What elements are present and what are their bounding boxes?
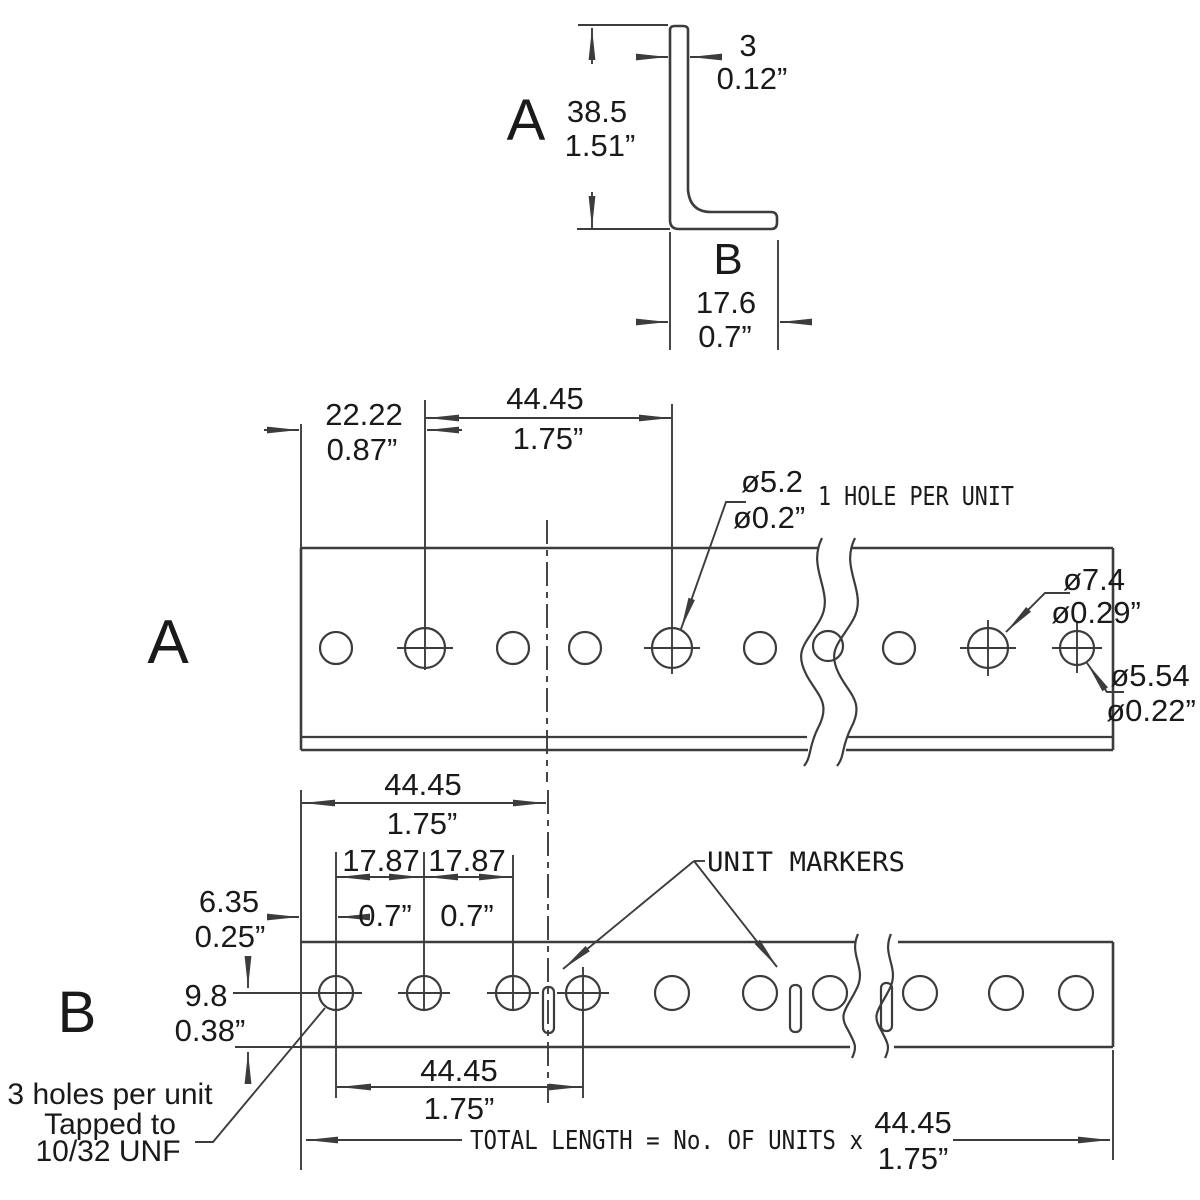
dim-spacing1-mm: 17.87 bbox=[342, 843, 420, 878]
hole-plain bbox=[655, 976, 689, 1010]
dim-big-hole-in: ø0.29” bbox=[1051, 595, 1141, 630]
view-b-label: B bbox=[58, 980, 97, 1045]
dim-unit-hole-in: ø0.2” bbox=[733, 500, 805, 535]
dim-pitch-b-top-mm: 44.45 bbox=[384, 767, 462, 802]
dim-total-in: 1.75” bbox=[878, 1141, 949, 1176]
side-b-view: B 44.45 1.75” 17.87 17.87 0.7” 0.7” 6.35… bbox=[7, 767, 1113, 1176]
note-tapped-line1: 3 holes per unit bbox=[7, 1078, 213, 1111]
hole-plain bbox=[1059, 976, 1093, 1010]
leader-unit-marker1 bbox=[563, 861, 694, 969]
dim-unit-hole-mm: ø5.2 bbox=[741, 464, 803, 499]
dim-holeheight-mm: 9.8 bbox=[184, 978, 227, 1013]
dim-edge-mm: 6.35 bbox=[199, 884, 259, 919]
hole-plain bbox=[813, 976, 847, 1010]
dim-total-mm: 44.45 bbox=[874, 1105, 952, 1140]
hole-plain bbox=[320, 632, 352, 664]
dim-offset-a-mm: 22.22 bbox=[325, 397, 403, 432]
note-tapped-line3: 10/32 UNF bbox=[35, 1135, 180, 1168]
angle-profile-outline bbox=[670, 26, 777, 229]
dim-holeheight-in: 0.38” bbox=[175, 1013, 246, 1048]
hole-plain bbox=[903, 976, 937, 1010]
cross-section-view: A 38.5 1.51” 3 0.12” B 17.6 0.7” bbox=[507, 25, 812, 354]
dim-small-hole-in: ø0.22” bbox=[1106, 693, 1196, 728]
dim-small-hole-mm: ø5.54 bbox=[1110, 658, 1189, 693]
section-label-a: A bbox=[507, 88, 546, 153]
hole-plain bbox=[744, 632, 776, 664]
dim-spacing2-in: 0.7” bbox=[440, 898, 493, 933]
dim-spacing1-in: 0.7” bbox=[358, 898, 411, 933]
dim-pitch-a-in: 1.75” bbox=[513, 421, 584, 456]
side-a-view: A 22.22 0.87” 44.45 1.75” ø5.2 ø0.2” 1 H… bbox=[147, 381, 1195, 782]
dim-edge-in: 0.25” bbox=[195, 919, 266, 954]
dim-offset-a-in: 0.87” bbox=[327, 432, 398, 467]
dim-big-hole-mm: ø7.4 bbox=[1063, 562, 1125, 597]
break-line-a-left bbox=[801, 538, 825, 766]
break-line-b-right bbox=[876, 934, 893, 1058]
hole-plain bbox=[989, 976, 1023, 1010]
dim-height-in: 1.51” bbox=[565, 128, 636, 163]
view-a-label: A bbox=[147, 608, 189, 677]
hole-plain bbox=[883, 632, 915, 664]
dim-spacing2-mm: 17.87 bbox=[428, 843, 506, 878]
note-unit-markers: UNIT MARKERS bbox=[707, 847, 905, 878]
engineering-drawing-page: A 38.5 1.51” 3 0.12” B 17.6 0.7” bbox=[0, 0, 1200, 1200]
hole-plain bbox=[497, 632, 529, 664]
dim-height-mm: 38.5 bbox=[567, 94, 627, 129]
dim-pitch-b-top-in: 1.75” bbox=[387, 806, 458, 841]
dim-thickness-mm: 3 bbox=[739, 28, 756, 63]
note-one-hole-per-unit: 1 HOLE PER UNIT bbox=[818, 482, 1014, 512]
dim-thickness-in: 0.12” bbox=[717, 61, 788, 96]
technical-drawing: A 38.5 1.51” 3 0.12” B 17.6 0.7” bbox=[0, 0, 1200, 1200]
unit-marker-slot bbox=[881, 983, 892, 1031]
break-line-a-right bbox=[834, 538, 858, 766]
hole-plain bbox=[569, 632, 601, 664]
dim-width-mm: 17.6 bbox=[696, 285, 756, 320]
hole-at-break bbox=[813, 631, 843, 661]
hole-plain bbox=[743, 976, 777, 1010]
note-total-length-formula: TOTAL LENGTH = No. OF UNITS x bbox=[470, 1126, 863, 1156]
dim-pitch-b-bot-mm: 44.45 bbox=[420, 1053, 498, 1088]
unit-marker-slot bbox=[790, 985, 801, 1032]
dim-pitch-a-mm: 44.45 bbox=[506, 381, 584, 416]
dim-width-in: 0.7” bbox=[698, 319, 751, 354]
section-label-b: B bbox=[713, 235, 742, 284]
dim-pitch-b-bot-in: 1.75” bbox=[424, 1091, 495, 1126]
